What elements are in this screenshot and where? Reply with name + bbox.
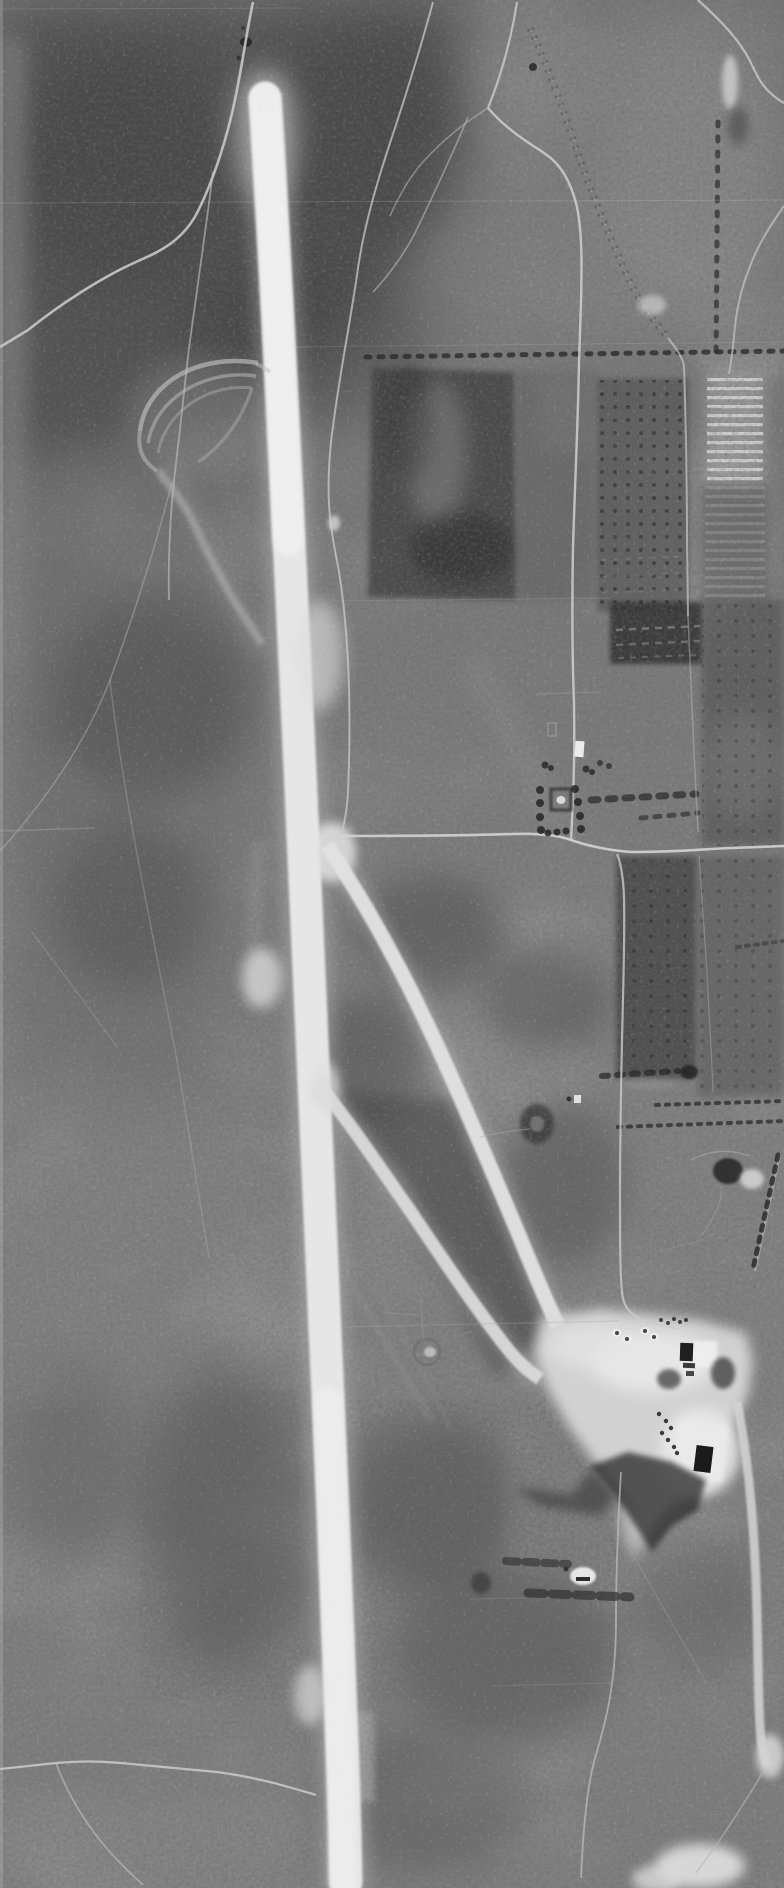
film-grain [0, 0, 784, 1888]
aerial-photo-frame [0, 0, 784, 1888]
aerial-photo-canvas [0, 0, 784, 1888]
